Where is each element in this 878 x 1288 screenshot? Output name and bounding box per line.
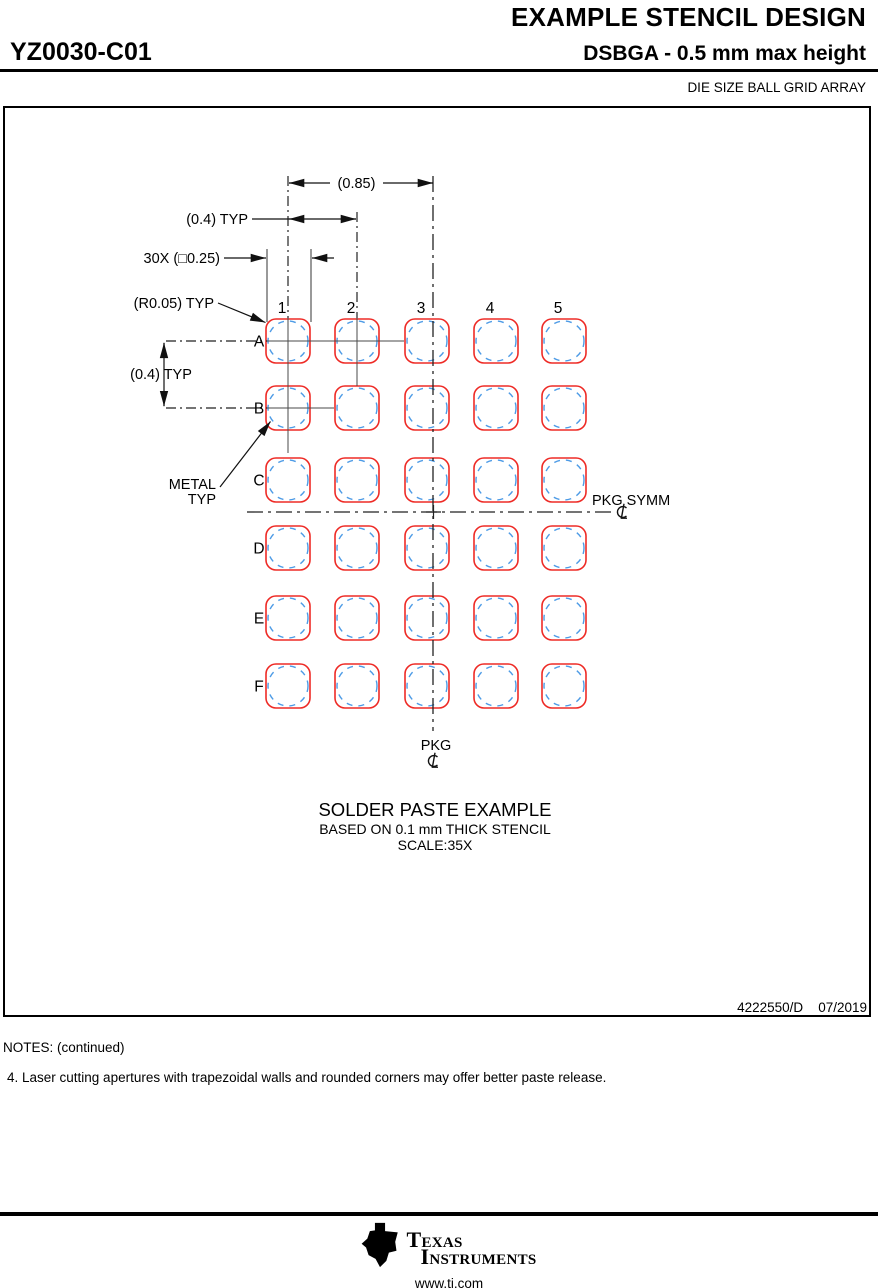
column-label-1: 1 xyxy=(278,300,287,317)
note-4: 4. Laser cutting apertures with trapezoi… xyxy=(7,1070,606,1085)
stencil-pad xyxy=(335,664,379,708)
stencil-pad xyxy=(335,596,379,640)
stencil-pad xyxy=(542,526,586,570)
stencil-pad xyxy=(542,458,586,502)
ti-logo-icon: ti xyxy=(361,1222,399,1273)
pkg-label: PKG xyxy=(421,738,452,754)
pkg-centerline-symbol xyxy=(428,753,438,767)
stencil-pad xyxy=(405,458,449,502)
doc-date: 07/2019 xyxy=(818,1000,867,1015)
row-label-A: A xyxy=(254,334,265,351)
centerlines xyxy=(166,176,616,731)
stencil-pad xyxy=(335,458,379,502)
caption-line3: SCALE:35X xyxy=(398,837,473,853)
dim-085-label: (0.85) xyxy=(338,176,376,192)
stencil-pad xyxy=(474,319,518,363)
caption-title: SOLDER PASTE EXAMPLE xyxy=(318,799,551,820)
column-label-3: 3 xyxy=(417,300,426,317)
pad-grid xyxy=(266,319,586,708)
aperture-label: 30X (□0.25) xyxy=(144,251,220,267)
stencil-pad xyxy=(542,596,586,640)
row-label-D: D xyxy=(253,541,264,558)
stencil-pad xyxy=(335,386,379,430)
row-label-C: C xyxy=(253,473,264,490)
datasheet-page: EXAMPLE STENCIL DESIGN YZ0030-C01 DSBGA … xyxy=(0,0,878,1288)
stencil-pad xyxy=(405,526,449,570)
ti-url: www.ti.com xyxy=(415,1276,483,1288)
row-label-F: F xyxy=(254,679,263,696)
svg-text:ti: ti xyxy=(375,1230,385,1248)
brand-instruments: Instruments xyxy=(420,1248,536,1265)
radius-leader xyxy=(218,303,266,323)
ti-logo: ti Texas Instruments www.ti.com xyxy=(0,1222,878,1288)
stencil-pad xyxy=(542,386,586,430)
dim-04v-label: (0.4) TYP xyxy=(130,367,192,383)
stencil-pad xyxy=(405,596,449,640)
stencil-pad xyxy=(266,664,310,708)
metal-label-line2: TYP xyxy=(188,492,216,508)
stencil-pad xyxy=(405,319,449,363)
stencil-pad xyxy=(266,596,310,640)
doc-number: 4222550/D07/2019 xyxy=(737,1000,867,1015)
column-label-5: 5 xyxy=(554,300,563,317)
stencil-pad xyxy=(474,526,518,570)
footer-rule xyxy=(0,1212,878,1216)
metal-label-line1: METAL xyxy=(169,477,216,493)
row-label-B: B xyxy=(254,401,264,418)
stencil-pad xyxy=(405,386,449,430)
stencil-pad xyxy=(266,526,310,570)
stencil-pad xyxy=(542,664,586,708)
stencil-pad xyxy=(266,458,310,502)
stencil-pad xyxy=(474,596,518,640)
radius-label: (R0.05) TYP xyxy=(134,296,214,312)
stencil-pad xyxy=(474,386,518,430)
stencil-pad xyxy=(542,319,586,363)
dim-04h-label: (0.4) TYP xyxy=(186,212,248,228)
pkg-center-cross xyxy=(426,505,441,519)
caption-line2: BASED ON 0.1 mm THICK STENCIL xyxy=(319,821,551,837)
stencil-pad xyxy=(405,664,449,708)
row-label-E: E xyxy=(254,611,264,628)
stencil-pad xyxy=(474,458,518,502)
stencil-pad xyxy=(335,526,379,570)
notes-heading: NOTES: (continued) xyxy=(3,1040,125,1055)
column-label-4: 4 xyxy=(486,300,495,317)
column-label-2: 2 xyxy=(347,300,356,317)
stencil-pad xyxy=(474,664,518,708)
stencil-drawing: (0.85) (0.4) TYP 30X (□0.25) (R0.05) TYP… xyxy=(0,0,878,1288)
doc-id: 4222550/D xyxy=(737,1000,803,1015)
pkg-symm-label: PKG SYMM xyxy=(592,493,670,509)
